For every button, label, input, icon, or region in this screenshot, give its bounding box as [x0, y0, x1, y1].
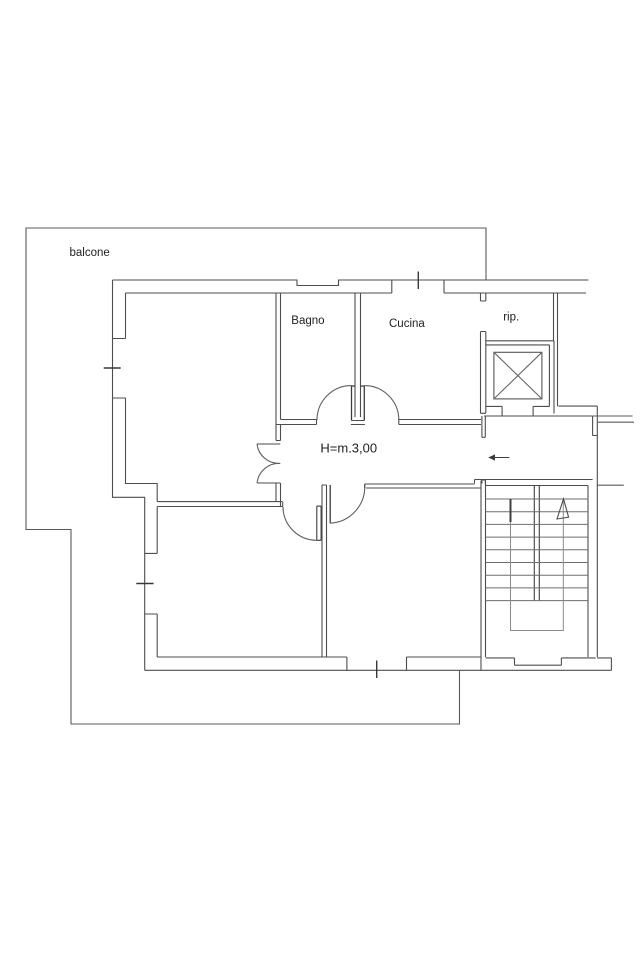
svg-text:balcone: balcone: [70, 247, 110, 259]
svg-text:H=m.3,00: H=m.3,00: [320, 441, 377, 456]
svg-text:rip.: rip.: [503, 312, 519, 324]
svg-text:Bagno: Bagno: [291, 315, 324, 327]
svg-text:Cucina: Cucina: [389, 318, 425, 330]
